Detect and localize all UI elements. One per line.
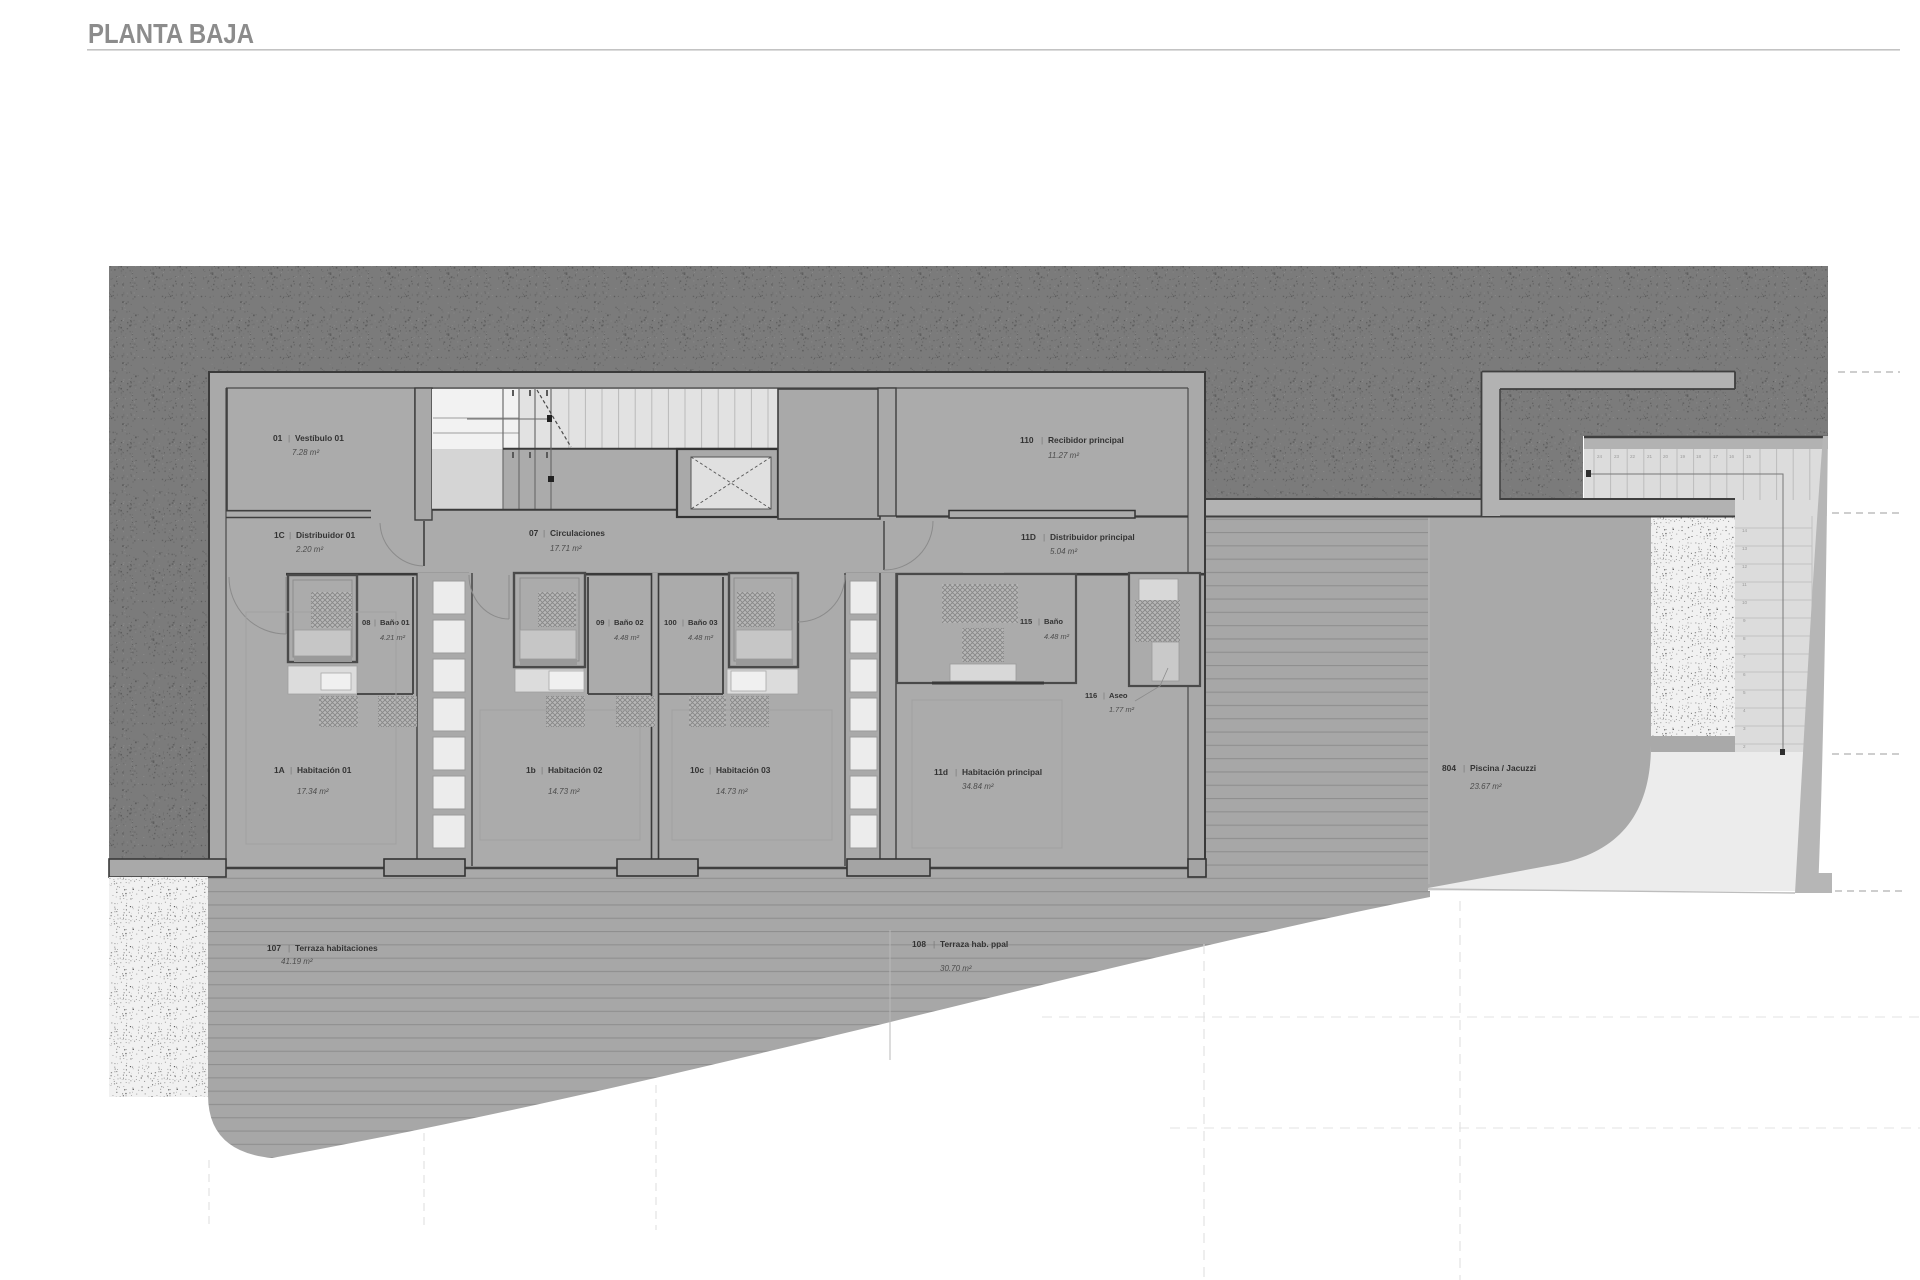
svg-text:41.19 m²: 41.19 m² <box>281 957 313 966</box>
svg-text:6: 6 <box>1743 672 1746 677</box>
svg-text:20: 20 <box>1663 454 1669 459</box>
svg-text:Baño 02: Baño 02 <box>614 618 644 627</box>
svg-text:804: 804 <box>1442 763 1456 773</box>
svg-text:1A: 1A <box>274 765 285 775</box>
svg-text:23.67 m²: 23.67 m² <box>1469 782 1502 791</box>
svg-text:14: 14 <box>1742 528 1748 533</box>
svg-text:12: 12 <box>1742 564 1748 569</box>
svg-text:107: 107 <box>267 943 281 953</box>
svg-text:16: 16 <box>1729 454 1735 459</box>
svg-text:Habitación principal: Habitación principal <box>962 767 1042 777</box>
svg-text:1b: 1b <box>526 765 536 775</box>
svg-text:11d: 11d <box>934 767 948 777</box>
svg-text:|: | <box>541 765 543 775</box>
svg-text:Habitación 02: Habitación 02 <box>548 765 603 775</box>
svg-text:108: 108 <box>912 939 926 949</box>
svg-text:10c: 10c <box>690 765 704 775</box>
svg-text:PLANTA BAJA: PLANTA BAJA <box>88 18 254 49</box>
svg-text:34.84 m²: 34.84 m² <box>962 782 994 791</box>
svg-text:07: 07 <box>529 528 539 538</box>
svg-text:11.27 m²: 11.27 m² <box>1048 451 1079 460</box>
svg-text:|: | <box>288 943 290 953</box>
svg-text:14.73 m²: 14.73 m² <box>548 787 580 796</box>
svg-text:08: 08 <box>362 618 370 627</box>
svg-text:4.48 m²: 4.48 m² <box>688 633 714 642</box>
svg-text:100: 100 <box>664 618 677 627</box>
svg-text:5: 5 <box>1743 690 1746 695</box>
svg-text:15: 15 <box>1746 454 1752 459</box>
svg-text:17.34 m²: 17.34 m² <box>297 787 329 796</box>
svg-text:|: | <box>289 530 291 540</box>
svg-text:Baño 03: Baño 03 <box>688 618 718 627</box>
svg-text:3: 3 <box>1743 726 1746 731</box>
svg-text:Terraza hab. ppal: Terraza hab. ppal <box>940 939 1008 949</box>
svg-text:24: 24 <box>1597 454 1603 459</box>
svg-text:110: 110 <box>1020 435 1034 445</box>
svg-text:1.77 m²: 1.77 m² <box>1109 705 1135 714</box>
svg-text:8: 8 <box>1743 636 1746 641</box>
svg-text:|: | <box>1463 763 1465 773</box>
svg-text:115: 115 <box>1020 617 1033 626</box>
svg-text:2.20 m²: 2.20 m² <box>295 545 323 554</box>
svg-text:Aseo: Aseo <box>1109 691 1128 700</box>
svg-text:Habitación 01: Habitación 01 <box>297 765 352 775</box>
svg-text:17.71 m²: 17.71 m² <box>550 544 582 553</box>
svg-text:17: 17 <box>1713 454 1719 459</box>
svg-text:Baño: Baño <box>1044 617 1063 626</box>
svg-text:7.28 m²: 7.28 m² <box>292 448 319 457</box>
svg-text:14.73 m²: 14.73 m² <box>716 787 748 796</box>
svg-text:19: 19 <box>1680 454 1686 459</box>
svg-text:Circulaciones: Circulaciones <box>550 528 605 538</box>
svg-text:10: 10 <box>1742 600 1748 605</box>
svg-text:11D: 11D <box>1021 532 1036 542</box>
svg-text:22: 22 <box>1630 454 1636 459</box>
svg-text:Distribuidor principal: Distribuidor principal <box>1050 532 1135 542</box>
svg-text:Distribuidor 01: Distribuidor 01 <box>296 530 355 540</box>
svg-text:|: | <box>682 618 684 627</box>
svg-text:7: 7 <box>1743 654 1746 659</box>
svg-text:18: 18 <box>1696 454 1702 459</box>
svg-text:|: | <box>709 765 711 775</box>
svg-text:|: | <box>1043 532 1045 542</box>
svg-text:Habitación 03: Habitación 03 <box>716 765 771 775</box>
svg-text:23: 23 <box>1614 454 1620 459</box>
svg-text:9: 9 <box>1743 618 1746 623</box>
svg-text:21: 21 <box>1647 454 1653 459</box>
svg-text:Recibidor principal: Recibidor principal <box>1048 435 1124 445</box>
svg-text:13: 13 <box>1742 546 1748 551</box>
svg-text:|: | <box>933 939 935 949</box>
svg-text:11: 11 <box>1742 582 1747 587</box>
svg-text:09: 09 <box>596 618 604 627</box>
svg-text:Piscina / Jacuzzi: Piscina / Jacuzzi <box>1470 763 1536 773</box>
svg-text:|: | <box>543 528 545 538</box>
svg-text:|: | <box>288 433 290 443</box>
svg-text:4.48 m²: 4.48 m² <box>1044 632 1070 641</box>
svg-text:4: 4 <box>1743 708 1746 713</box>
svg-text:1C: 1C <box>274 530 285 540</box>
svg-text:116: 116 <box>1085 691 1097 700</box>
svg-text:|: | <box>955 767 957 777</box>
svg-text:|: | <box>608 618 610 627</box>
svg-text:5.04 m²: 5.04 m² <box>1050 547 1077 556</box>
svg-text:4.48 m²: 4.48 m² <box>614 633 640 642</box>
svg-text:|: | <box>1041 435 1043 445</box>
svg-text:Baño 01: Baño 01 <box>380 618 410 627</box>
svg-text:4.21 m²: 4.21 m² <box>380 633 406 642</box>
svg-text:Vestíbulo 01: Vestíbulo 01 <box>295 433 344 443</box>
svg-text:30.70 m²: 30.70 m² <box>940 964 972 973</box>
svg-text:2: 2 <box>1743 744 1746 749</box>
svg-text:|: | <box>290 765 292 775</box>
svg-text:01: 01 <box>273 433 283 443</box>
svg-text:|: | <box>374 618 376 627</box>
svg-text:Terraza habitaciones: Terraza habitaciones <box>295 943 378 953</box>
svg-text:|: | <box>1103 691 1105 700</box>
svg-text:|: | <box>1038 617 1040 626</box>
